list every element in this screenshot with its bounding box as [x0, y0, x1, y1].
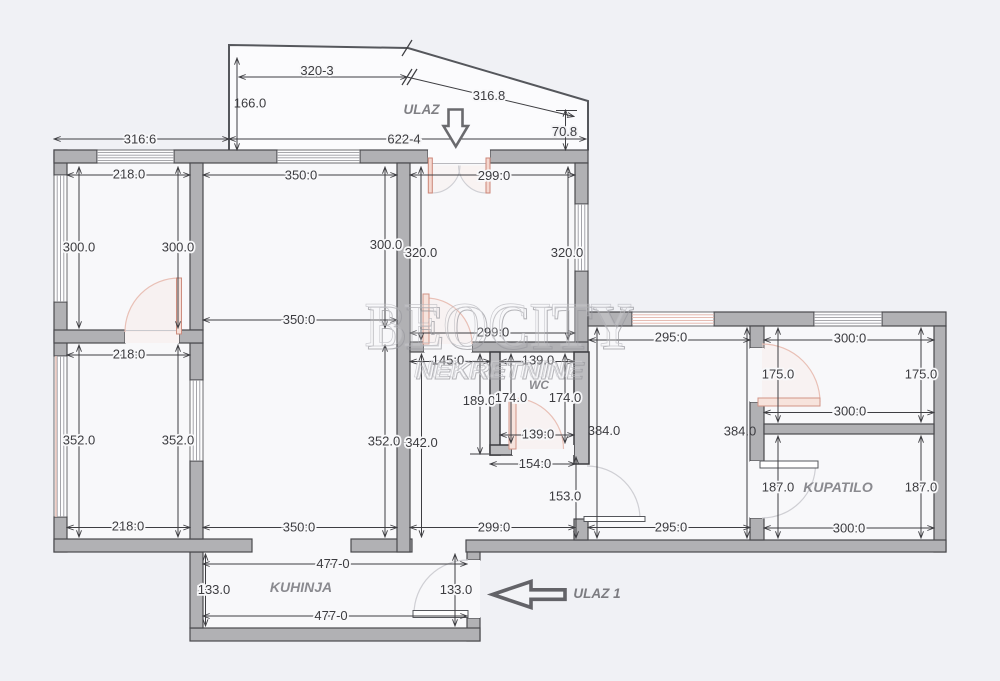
svg-text:295:0: 295:0 — [655, 330, 688, 345]
svg-text:350:0: 350:0 — [283, 312, 316, 327]
svg-text:295:0: 295:0 — [655, 520, 688, 535]
svg-text:316:6: 316:6 — [124, 132, 157, 147]
svg-text:218.0: 218.0 — [113, 167, 146, 182]
svg-text:350:0: 350:0 — [283, 520, 316, 535]
svg-text:316.8: 316.8 — [473, 88, 506, 103]
svg-text:175.0: 175.0 — [905, 367, 938, 382]
svg-text:218:0: 218:0 — [113, 347, 146, 362]
svg-text:187.0: 187.0 — [905, 480, 938, 495]
svg-text:ULAZ: ULAZ — [404, 102, 441, 117]
svg-text:187.0: 187.0 — [762, 480, 795, 495]
svg-text:174.0: 174.0 — [495, 390, 528, 405]
svg-text:133.0: 133.0 — [440, 582, 473, 597]
svg-text:352.0: 352.0 — [162, 433, 195, 448]
svg-text:300:0: 300:0 — [834, 331, 867, 346]
svg-text:174.0: 174.0 — [549, 390, 582, 405]
svg-text:300:0: 300:0 — [833, 521, 866, 536]
svg-text:300:0: 300:0 — [834, 404, 867, 419]
svg-text:477-0: 477-0 — [316, 556, 349, 571]
svg-text:300.0: 300.0 — [370, 237, 403, 252]
svg-text:ULAZ 1: ULAZ 1 — [573, 586, 620, 601]
svg-text:352.0: 352.0 — [368, 434, 401, 449]
svg-text:166.0: 166.0 — [234, 96, 267, 111]
svg-text:218:0: 218:0 — [112, 519, 145, 534]
svg-text:299:0: 299:0 — [478, 520, 511, 535]
svg-text:KUPATILO: KUPATILO — [803, 479, 873, 495]
svg-text:342.0: 342.0 — [405, 435, 438, 450]
svg-text:153.0: 153.0 — [549, 489, 582, 504]
svg-text:384.0: 384.0 — [724, 424, 757, 439]
svg-text:BEOCITY: BEOCITY — [365, 290, 632, 360]
svg-text:384.0: 384.0 — [588, 423, 621, 438]
svg-text:320.0: 320.0 — [551, 245, 584, 260]
svg-text:NEKRETNINE: NEKRETNINE — [414, 356, 583, 383]
svg-text:KUHINJA: KUHINJA — [270, 579, 332, 595]
svg-text:352.0: 352.0 — [63, 433, 96, 448]
svg-text:622-4: 622-4 — [387, 132, 420, 147]
svg-text:175.0: 175.0 — [762, 367, 795, 382]
svg-text:300.0: 300.0 — [162, 240, 195, 255]
svg-text:133.0: 133.0 — [198, 582, 231, 597]
svg-text:300.0: 300.0 — [63, 240, 96, 255]
svg-text:477-0: 477-0 — [314, 608, 347, 623]
svg-text:139:0: 139:0 — [522, 427, 555, 442]
svg-text:320-3: 320-3 — [300, 63, 333, 78]
svg-text:350:0: 350:0 — [285, 168, 318, 183]
svg-text:154:0: 154:0 — [519, 456, 552, 471]
svg-text:299:0: 299:0 — [478, 168, 511, 183]
svg-text:189.0: 189.0 — [463, 393, 496, 408]
svg-text:320.0: 320.0 — [405, 245, 438, 260]
svg-text:70.8: 70.8 — [552, 124, 577, 139]
